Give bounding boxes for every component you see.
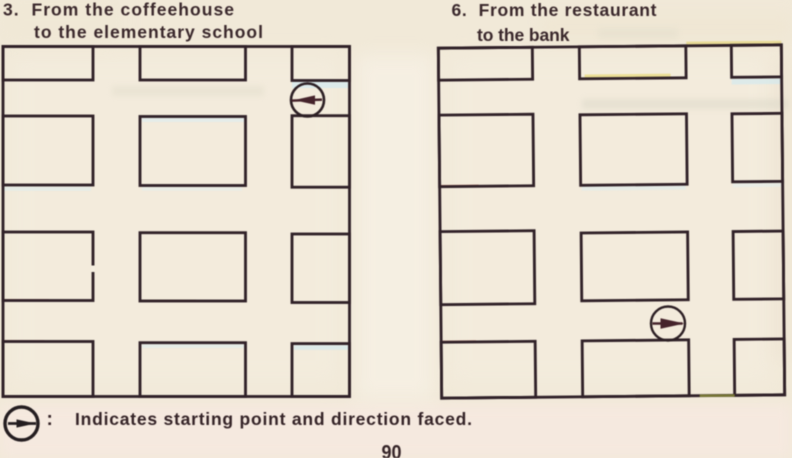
svg-text:3. From the coffeehouse: 3. From the coffeehouse — [3, 0, 234, 19]
svg-text:to the elementary school: to the elementary school — [34, 22, 263, 42]
svg-text:to the bank: to the bank — [477, 25, 570, 45]
svg-text::: : — [47, 409, 53, 430]
svg-text:90: 90 — [382, 442, 402, 458]
svg-text:Indicates starting point and d: Indicates starting point and direction f… — [75, 409, 472, 429]
svg-text:6. From the restaurant: 6. From the restaurant — [452, 0, 657, 20]
